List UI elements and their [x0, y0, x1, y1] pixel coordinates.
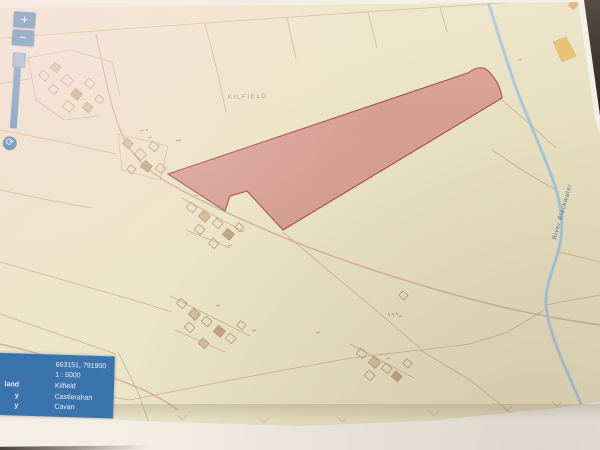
photo-of-map-screen: KILFIELD River Blackwater + − ⟳ 663151, … [0, 0, 600, 450]
zoom-slider-handle[interactable] [12, 52, 26, 68]
townland-map-label: KILFIELD [228, 93, 268, 101]
location-info-panel: 663151, 791900 1 : 5000 land Kilfield y … [0, 352, 115, 419]
zoom-out-button[interactable]: − [12, 29, 35, 46]
scale-value: 1 : 5000 [55, 372, 81, 380]
printed-map-page: KILFIELD River Blackwater + − ⟳ 663151, … [0, 0, 600, 450]
coordinates-value: 663151, 791900 [56, 361, 107, 370]
coordinates-label [0, 362, 20, 364]
scale-label [0, 373, 19, 375]
desk-surface-edge [0, 445, 150, 450]
townland-value: Kilfield [55, 383, 76, 391]
refresh-icon: ⟳ [5, 138, 14, 149]
county-value: Cavan [54, 404, 74, 412]
zoom-in-button[interactable]: + [13, 11, 36, 28]
townland-label-fragment: land [0, 380, 19, 389]
refresh-button[interactable]: ⟳ [2, 136, 17, 151]
zoom-slider[interactable] [9, 52, 23, 130]
barony-label-fragment: y [0, 390, 19, 399]
barony-value: Castlerahan [55, 393, 93, 401]
county-label-fragment: y [0, 401, 18, 410]
